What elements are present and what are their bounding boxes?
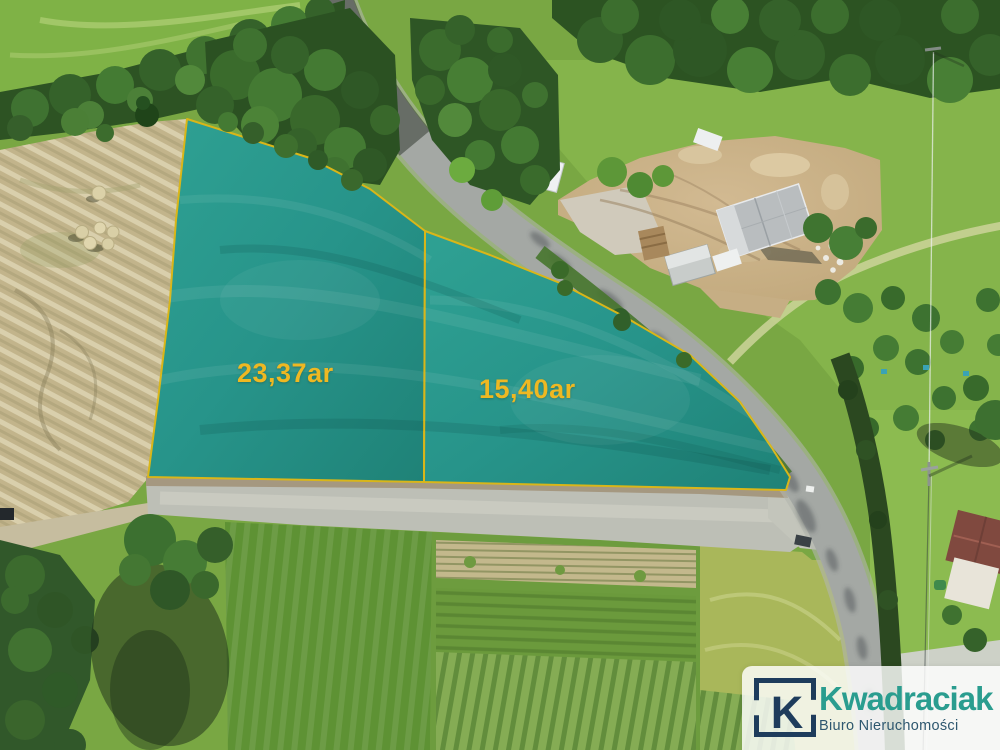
parcel-divider-line — [424, 231, 425, 482]
lone-tree — [61, 108, 89, 136]
brand-subtitle: Biuro Nieruchomości — [819, 718, 1000, 734]
sale-sign — [806, 485, 815, 492]
brand-logo: K Kwadraciak Biuro Nieruchomości — [742, 666, 1000, 750]
aerial-photo — [0, 0, 1000, 750]
brand-name: Kwadraciak — [819, 682, 1000, 715]
aerial-listing-photo: 23,37ar 15,40ar K Kwadraciak Biuro Nieru… — [0, 0, 1000, 750]
brand-monogram-icon: K — [754, 678, 816, 737]
trampoline — [934, 580, 946, 590]
brand-monogram-letter: K — [756, 678, 818, 737]
parked-car-left — [0, 508, 14, 520]
